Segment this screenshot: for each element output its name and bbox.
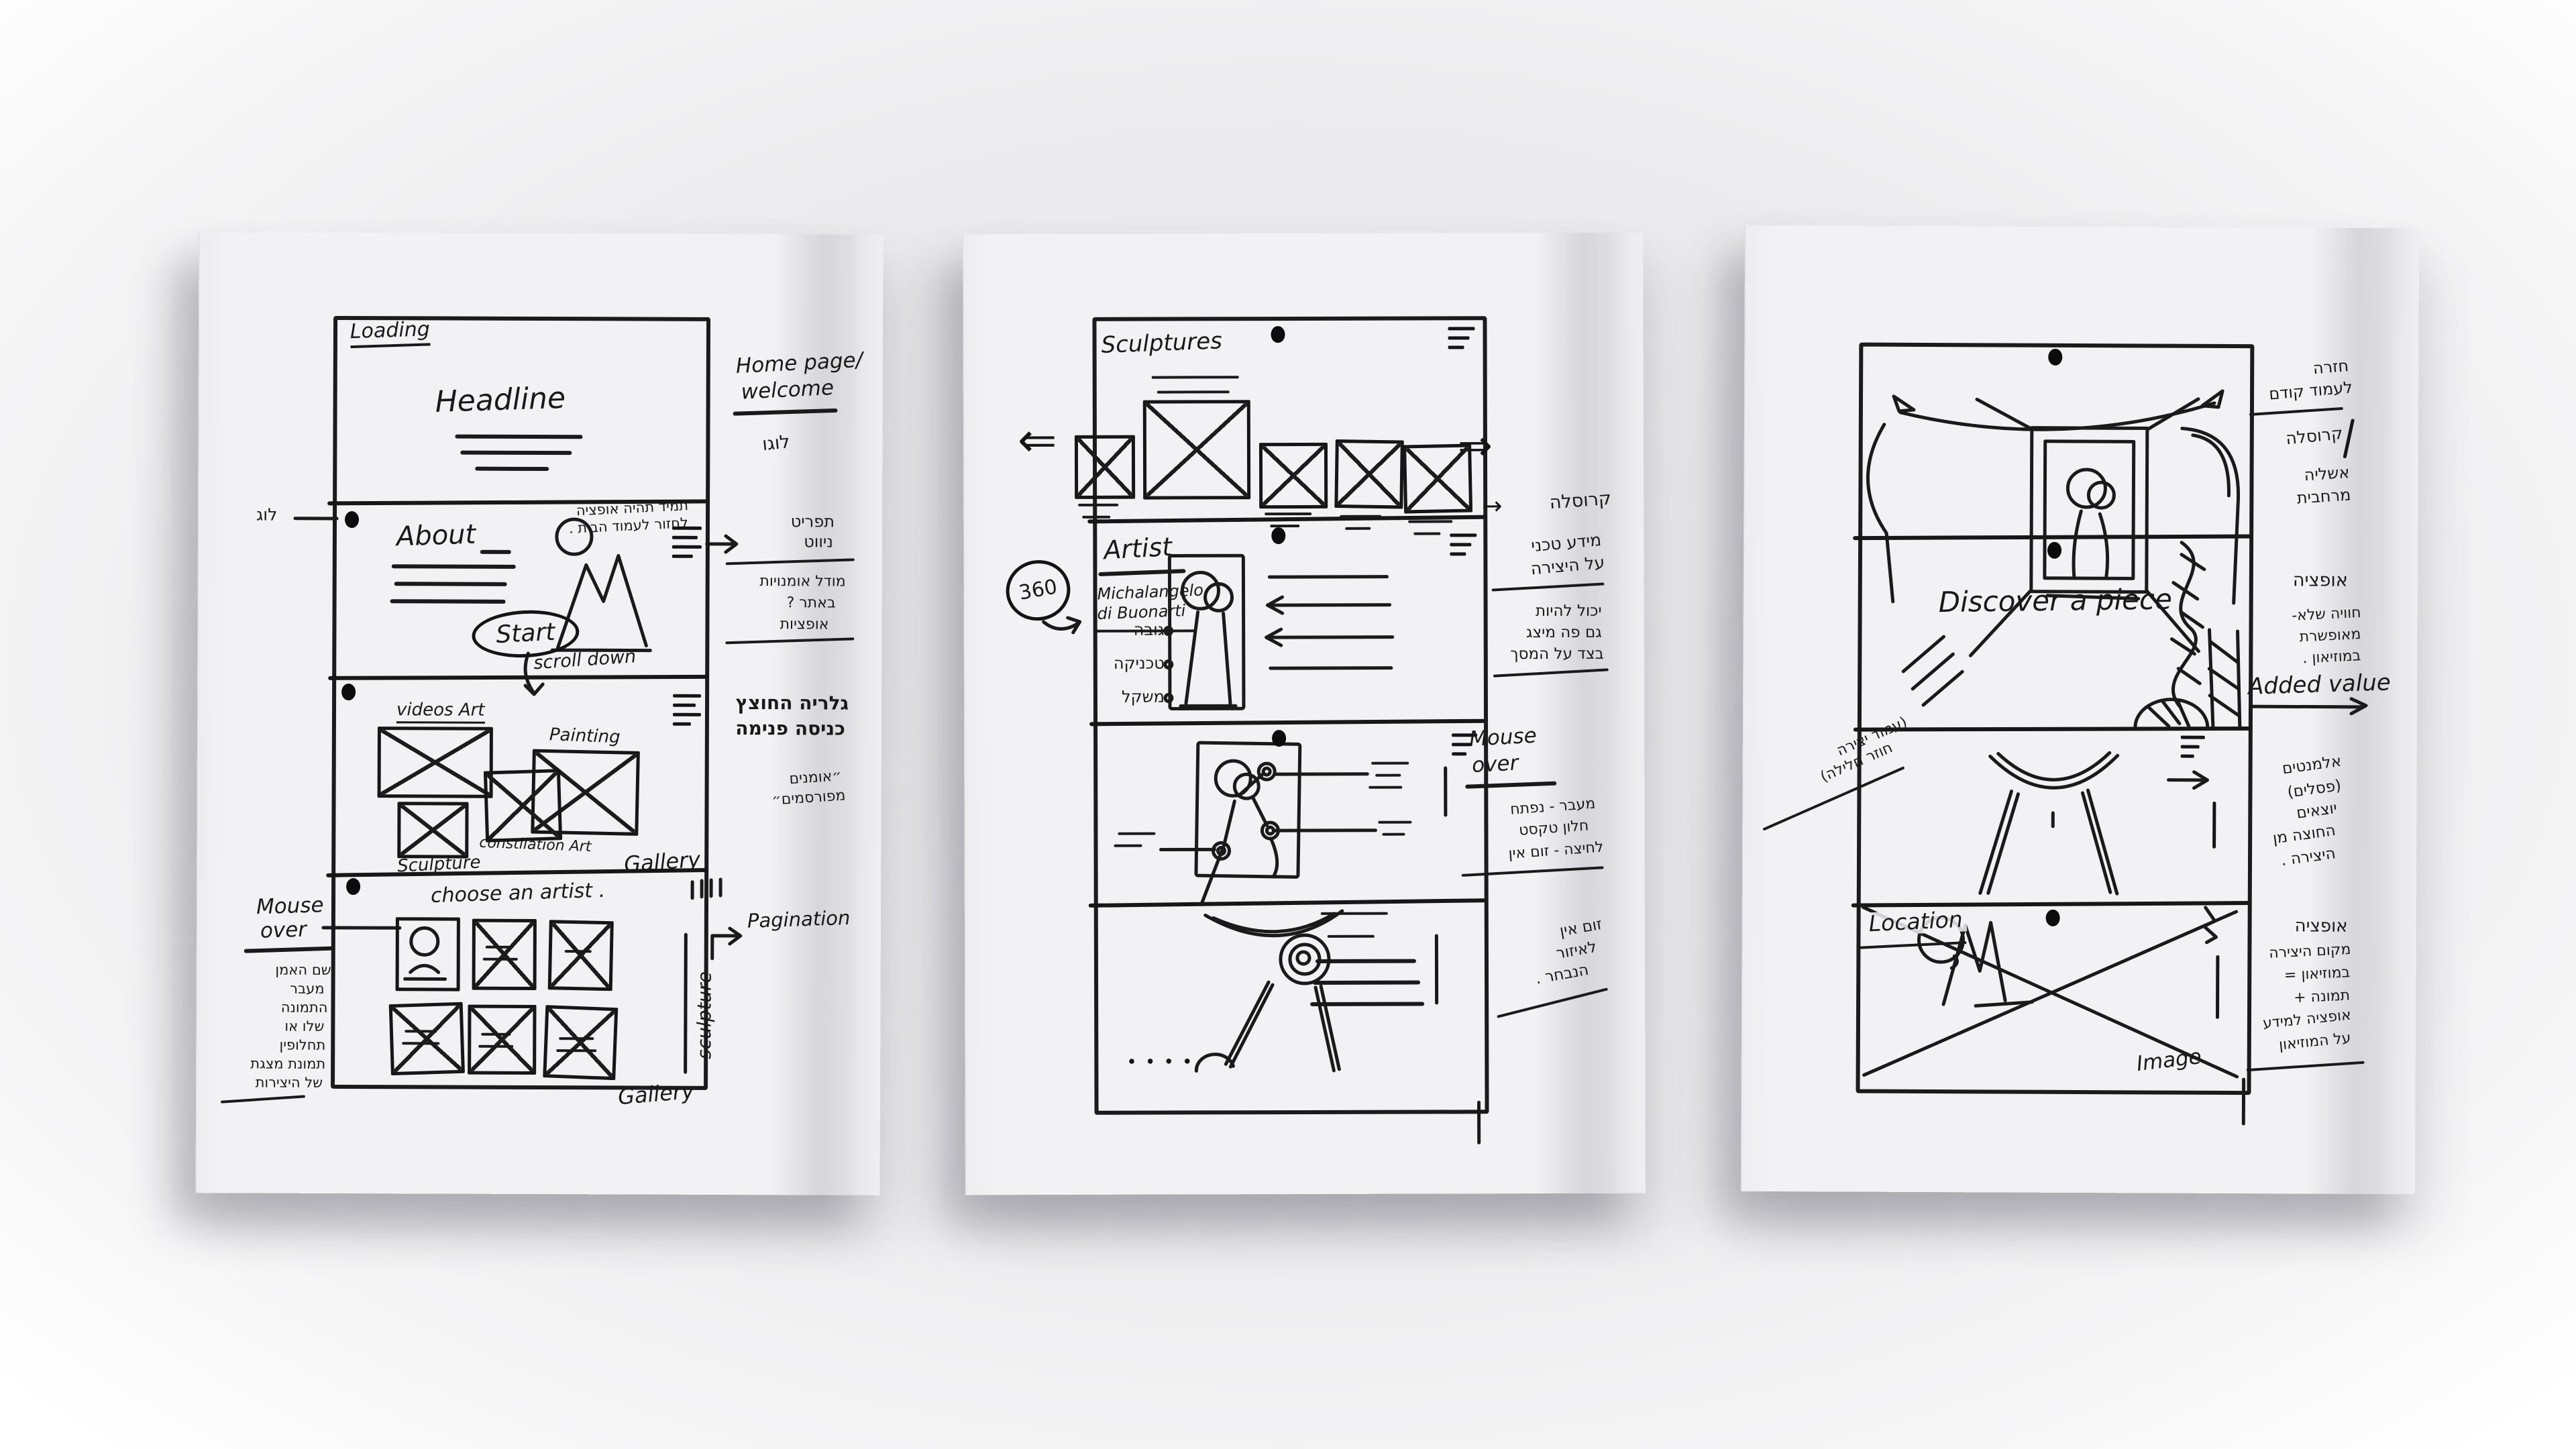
carousel-left-arrow-icon: ⇐ [1018, 417, 1057, 464]
detail-caption-line [1316, 959, 1416, 963]
badge-360-label: 360 [1018, 576, 1059, 604]
menu-icon [2181, 736, 2205, 764]
hotspot-note-line [1378, 821, 1411, 824]
gallery-entry-note-line1: גלריה החוצץ [721, 693, 849, 713]
hover-list-item: שלו או [223, 1018, 324, 1034]
slide-caption-line [1078, 504, 1118, 506]
spec-height: גובה [1097, 622, 1165, 639]
carousel-title-line [1152, 376, 1239, 378]
caption-bar [1435, 934, 1438, 1004]
constellation-art-image [484, 769, 562, 843]
tech-info-note-line3: יכול להיות [1498, 603, 1602, 620]
hover-note-line2: over [1471, 752, 1519, 776]
hover-list-item: תמונת מצגת [215, 1056, 325, 1071]
choose-artist-label: choose an artist . [431, 880, 606, 907]
spec-technique: טכניקה [1084, 655, 1165, 673]
videos-art-image [378, 727, 493, 798]
menu-icon [673, 694, 701, 732]
card-text-line [405, 1030, 437, 1032]
painting-label: Painting [549, 726, 621, 747]
location-heading: Location [1864, 908, 1968, 936]
hover-list-item: של היצירות [215, 1075, 323, 1090]
carousel-slide [1334, 439, 1404, 509]
hotspot-note-line [1118, 833, 1155, 835]
carousel-slide [1259, 443, 1328, 508]
sculpture-side-bar [684, 933, 688, 1074]
card-text-line [565, 950, 592, 953]
slide-caption-line [1270, 525, 1299, 527]
artist-card [389, 1002, 465, 1075]
wireframe-sheet-artist: Sculptures ⇐ ⇒ → קרוסלה Artist Michalang… [963, 233, 1646, 1195]
detail-caption-line [1313, 981, 1420, 985]
margin-tick [2212, 802, 2216, 849]
videos-art-label: videos Art [396, 701, 485, 724]
margin-tick [2216, 955, 2219, 1019]
artist-card [472, 919, 537, 990]
artist-heading: Artist [1103, 534, 1173, 564]
hover-list-item: מעבר [224, 981, 325, 996]
start-label: Start [496, 620, 556, 648]
location-note-line: תמונה + [2264, 987, 2351, 1007]
gallery-entry-note-line2: כניסה פנימה [721, 718, 845, 739]
card-text-line [559, 1037, 594, 1040]
artist-sketch-lines [963, 233, 1646, 1195]
nav-menu-note-line1: תפריט [754, 513, 835, 531]
artist-card [468, 1005, 536, 1075]
about-underscore [480, 550, 511, 554]
carousel-slide-edge [1075, 435, 1135, 499]
mouse-over-note-line2: over [260, 919, 307, 943]
section-bullet [345, 511, 359, 528]
tech-info-note-line4: גם פה מיצג [1495, 625, 1602, 641]
hotspot-note-line [1371, 762, 1409, 765]
artist-card-portrait [396, 917, 460, 991]
card-text-line [486, 946, 513, 949]
card-text-line [483, 958, 518, 961]
location-note-line: אופציה [2261, 917, 2348, 936]
hotspot-note-line [1114, 845, 1142, 847]
menu-icon [672, 527, 702, 564]
pagination-dots: • • • • [1126, 1053, 1193, 1071]
slide-caption-line [1265, 513, 1311, 515]
card-text-line [478, 1045, 513, 1048]
sculpture-vertical-label: sculpture [694, 971, 714, 1059]
wireframe-sheet-discover: Discover a piece (עמוד יצירה חוזר חלילה)… [1741, 225, 2419, 1194]
slide-caption-line [1408, 520, 1452, 523]
section-bullet [1272, 730, 1286, 747]
discover-heading: Discover a piece [1938, 585, 2172, 618]
tech-info-note-line5: בצד על המסך [1491, 646, 1604, 663]
hotspot-note-line [1368, 786, 1402, 789]
margin-tick [1444, 766, 1447, 816]
headline-placeholder: Headline [435, 383, 566, 418]
hover-list-item: התמונה [223, 1000, 327, 1015]
about-text-line [394, 582, 507, 586]
logo-note: לוג [256, 506, 277, 524]
slide-caption-line [1082, 516, 1110, 519]
hover-list-item: תחלופין [223, 1037, 325, 1053]
about-text-line [390, 599, 506, 604]
section-bullet [2047, 542, 2061, 559]
nav-menu-note-line2: ניווט [759, 533, 833, 551]
headline-text-line [460, 451, 572, 455]
detail-caption-line [1310, 1002, 1424, 1006]
hotspot-note-line [1382, 833, 1405, 836]
menu-icon [1450, 533, 1477, 561]
logo-margin-note: לוגו [761, 433, 791, 454]
headline-text-line [455, 435, 582, 439]
carousel-slide-main [1143, 400, 1250, 499]
added-value-note: Added value [2248, 671, 2392, 699]
card-text-line [481, 1033, 511, 1036]
artist-card [548, 920, 614, 991]
section-bullet [341, 684, 356, 700]
artist-card [543, 1005, 618, 1080]
detail-caption-line [1328, 935, 1375, 938]
pagination-note: Pagination [747, 908, 850, 931]
gallery-label: Gallery [623, 849, 701, 876]
photo-of-wireframe-sketches: Loading Headline לוג תמיד תהיה אופציה לח… [0, 0, 2576, 1449]
home-page-note-line2: welcome [741, 377, 835, 403]
card-text-line [402, 1042, 439, 1044]
wireframe-sheet-home: Loading Headline לוג תמיד תהיה אופציה לח… [196, 232, 883, 1195]
section-bullet [2048, 349, 2062, 366]
headline-text-line [475, 467, 549, 471]
sculpture-image [397, 802, 468, 858]
hover-list-item: שם האמן [224, 962, 331, 977]
carousel-note-arrow-icon: → [1482, 494, 1502, 519]
about-text-line [392, 564, 516, 569]
sculptures-heading: Sculptures [1101, 329, 1223, 358]
card-text-line [556, 1049, 596, 1052]
spec-weight: משקל [1092, 689, 1165, 706]
art-model-note-line2: באתר ? [735, 595, 836, 611]
section-bullet [2046, 910, 2060, 926]
section-bullet [346, 878, 360, 895]
art-model-note-line1: מודל אומנויות [722, 574, 846, 590]
section-bullet [1271, 527, 1285, 544]
hover-note-line1: Mouse [1468, 724, 1537, 750]
carousel-title-line [1157, 390, 1230, 393]
artist-name-line1: Michalangelo [1097, 582, 1203, 603]
slide-caption-line [1413, 532, 1440, 535]
about-heading: About [396, 521, 476, 551]
option-note: אופציה [2267, 571, 2348, 590]
sculpture-label: Sculpture [397, 853, 482, 875]
menu-icon [1448, 327, 1474, 355]
carousel-slide [1403, 443, 1472, 513]
mouse-over-note-line1: Mouse [256, 894, 325, 918]
art-model-note-line3: אופציות [728, 616, 828, 633]
loading-label: Loading [350, 319, 430, 347]
slide-caption-line [1340, 515, 1381, 518]
section-bullet [1271, 326, 1285, 343]
detail-caption-line [1321, 912, 1388, 915]
hotspot-note-line [1375, 774, 1401, 777]
slide-caption-line [1345, 527, 1371, 530]
